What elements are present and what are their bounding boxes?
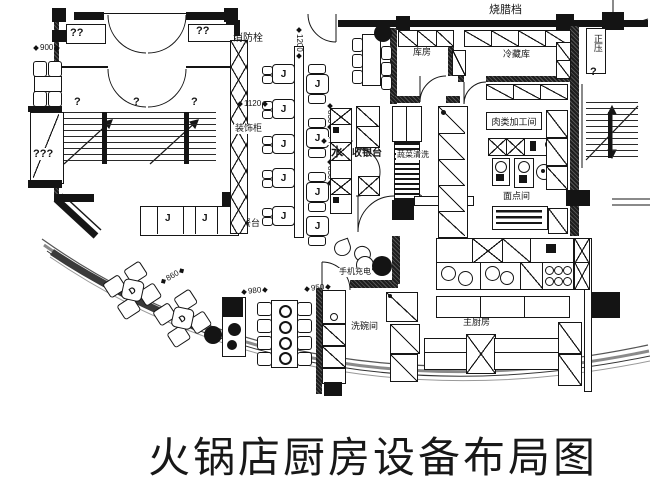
- chair: [297, 319, 312, 333]
- shelf-box: [556, 60, 571, 79]
- cashier-label: 收银台: [351, 148, 383, 159]
- equipment-block: [392, 200, 414, 220]
- cabinet-box: [548, 208, 568, 234]
- wok-burner: [563, 277, 572, 286]
- mixer-base: [496, 174, 504, 181]
- meat-processing-label-box: 肉类加工间: [486, 112, 542, 130]
- right-stairs: [586, 102, 638, 160]
- cabinet-cell: [439, 211, 465, 236]
- work-table: [480, 296, 526, 318]
- cabinet-box: [390, 354, 418, 382]
- wok-burner: [545, 266, 554, 275]
- dining-table-long: [362, 34, 381, 86]
- dimension: 1200: [295, 28, 303, 58]
- placeholder-text: ?: [74, 96, 81, 108]
- wall-segment: [28, 180, 62, 188]
- shelf-box: [540, 84, 568, 100]
- wall-dishwash-top: [350, 280, 398, 288]
- chair: [257, 336, 272, 350]
- seat-label: J: [201, 213, 209, 224]
- chair: [381, 62, 392, 76]
- dish-counter: [322, 324, 346, 346]
- cabinet-divider: [217, 206, 218, 234]
- cabinet-divider: [195, 206, 196, 234]
- cashier-counter: [356, 126, 380, 148]
- island-table: [424, 338, 468, 370]
- chair: [48, 91, 62, 107]
- placeholder-text: ?: [191, 96, 198, 108]
- cabinet-box: [390, 324, 420, 354]
- wall-storeroom-bottom: [390, 96, 420, 103]
- kitchen-hood-unit: [436, 238, 474, 264]
- sink-unit: [506, 138, 525, 156]
- plant: [372, 256, 392, 276]
- veg-wash-sink: [406, 106, 422, 142]
- placeholder-text: ??: [70, 27, 83, 39]
- kitchen-equipment: [574, 262, 590, 290]
- booth-table: J: [306, 74, 329, 94]
- banquette-counter: [294, 46, 304, 238]
- chair: [257, 302, 272, 316]
- chair: [352, 54, 363, 68]
- veg-wash-label: 蔬菜清洗: [396, 151, 430, 160]
- meat-processing-label: 肉类加工间: [491, 115, 536, 128]
- kiosk-top: [223, 298, 243, 317]
- wall-line: [186, 66, 236, 68]
- pastry-room-label: 面点间: [502, 192, 531, 202]
- stool-center: [541, 169, 545, 173]
- cabinet-box: [546, 138, 568, 166]
- wall-segment: [74, 12, 104, 20]
- cabinet-box: [546, 110, 568, 138]
- chair: [33, 91, 47, 107]
- wall-pillar: [52, 30, 67, 42]
- booth-table: J: [306, 216, 329, 236]
- shelf-box: [464, 30, 492, 47]
- cold-storage-door: [464, 82, 486, 104]
- chair: [297, 352, 312, 366]
- hotpot-burner: [279, 305, 292, 318]
- square-table: D: [120, 278, 145, 303]
- cabinet-cell: [439, 133, 465, 160]
- chair: [381, 76, 392, 90]
- booth-chair: [308, 172, 326, 182]
- square-table: D: [170, 306, 195, 331]
- placeholder-text: ?: [133, 96, 140, 108]
- booth-chair: [308, 118, 326, 128]
- wall-pillar: [52, 8, 66, 22]
- stair-post: [184, 112, 189, 164]
- stove-unit: [520, 262, 544, 290]
- equipment-block: [530, 141, 536, 151]
- dough-table-top: [496, 210, 542, 224]
- table-divider: [494, 352, 568, 353]
- wok-burner: [545, 277, 554, 286]
- work-table: [436, 296, 482, 318]
- wall-dishwash-vertical: [392, 236, 400, 284]
- booth-table: J: [272, 168, 295, 188]
- booth-chair: [308, 202, 326, 212]
- chair: [297, 302, 312, 316]
- wall-pillar: [566, 190, 590, 206]
- equipment-dot: [441, 110, 446, 115]
- water-bar-label: 水: [330, 146, 344, 159]
- wok-burner: [563, 266, 572, 275]
- mixer-bowl: [495, 161, 507, 173]
- chair: [352, 38, 363, 52]
- chair: [381, 46, 392, 60]
- entrance-door-arcs: [108, 15, 186, 107]
- seat-label: J: [164, 213, 172, 224]
- chair: [352, 70, 363, 84]
- drawing-title: 火锅店厨房设备布局图: [148, 424, 598, 482]
- plant: [374, 24, 392, 42]
- stair-post: [102, 112, 107, 164]
- equipment-block: [546, 244, 556, 253]
- shelf-box: [436, 30, 454, 47]
- storeroom-label: 库房: [412, 48, 432, 58]
- wall-storeroom-bottom: [446, 96, 460, 103]
- cabinet-cell: [439, 159, 465, 186]
- booth-chair: [308, 236, 326, 246]
- shelf-box: [417, 30, 437, 47]
- chair: [33, 61, 47, 77]
- dimension: 900: [34, 44, 59, 52]
- booth-chair: [308, 64, 326, 74]
- mixer-bowl: [518, 161, 530, 173]
- storeroom-door: [420, 76, 446, 102]
- table-divider: [424, 352, 466, 353]
- lobby-stairs: [62, 112, 216, 164]
- stove-burner: [485, 266, 500, 281]
- booth-table: J: [272, 64, 295, 84]
- stove-burner: [500, 271, 514, 285]
- drain: [330, 313, 338, 321]
- chair: [257, 352, 272, 366]
- wall-segment: [54, 194, 94, 202]
- booth-chair: [308, 148, 326, 158]
- shelf-box: [452, 50, 466, 76]
- placeholder-text: ??: [196, 25, 209, 37]
- cabinet-box: [558, 322, 582, 354]
- stove-burner: [441, 266, 456, 281]
- plant: [204, 326, 222, 344]
- dining-table: [34, 76, 62, 92]
- wall-line: [60, 66, 108, 68]
- dimension: 1120: [238, 100, 267, 108]
- booth-table: J: [272, 99, 295, 119]
- prep-cabinet-row: [140, 206, 239, 236]
- kiosk-equipment: [227, 340, 237, 350]
- chair: [297, 336, 312, 350]
- hotpot-burner: [279, 352, 292, 365]
- cabinet-divider: [157, 206, 158, 234]
- sink-unit: [488, 138, 507, 156]
- decor-cabinet: [230, 40, 248, 234]
- equipment-block: [333, 197, 339, 203]
- placeholder-text: ?: [590, 66, 597, 78]
- column-pillar: [592, 292, 620, 318]
- cashier-counter: [356, 106, 380, 128]
- wok-burner: [554, 266, 563, 275]
- work-table: [524, 296, 570, 318]
- placeholder-text: ???: [33, 148, 53, 160]
- kiosk-equipment: [228, 323, 241, 336]
- positive-pressure-label: 正压: [591, 34, 603, 52]
- wok-burner: [554, 277, 563, 286]
- bar-counter-unit: [330, 160, 352, 180]
- equipment-block: [324, 382, 342, 396]
- stove-burner: [458, 271, 473, 286]
- wall-pillar: [396, 16, 410, 30]
- kitchen-hood-unit: [502, 238, 532, 264]
- shelf-box: [398, 30, 418, 47]
- main-kitchen-label: 主厨房: [462, 318, 491, 328]
- island-center-unit: [466, 334, 496, 374]
- bbq-stall-label: 烧腊档: [488, 4, 523, 16]
- wall-segment: [458, 76, 464, 82]
- booth-table: J: [272, 206, 295, 226]
- room-diagonal: [33, 114, 59, 178]
- shelf-box: [491, 30, 519, 47]
- kitchen-equipment: [574, 238, 590, 264]
- hotpot-burner: [279, 337, 292, 350]
- mixer-base: [519, 175, 527, 183]
- phone-charging-label: 手机充电: [338, 268, 372, 277]
- shelf-box: [518, 30, 546, 47]
- dishwash-label: 洗碗间: [350, 322, 379, 332]
- booth-chair: [308, 94, 326, 104]
- chair: [257, 319, 272, 333]
- stair-post: [608, 112, 612, 158]
- equipment-block: [333, 127, 339, 133]
- wall-line: [104, 13, 186, 14]
- cabinet-cell: [439, 185, 465, 212]
- shelf-box: [486, 84, 514, 100]
- dining-entry-door: [308, 14, 336, 42]
- cabinet-box: [546, 166, 568, 190]
- cabinet-box: [558, 354, 582, 386]
- dish-counter: [322, 346, 346, 368]
- cold-storage-label: 冷藏库: [502, 50, 531, 60]
- equipment-dot: [388, 294, 392, 298]
- shelf-box: [513, 84, 541, 100]
- shelf-box: [556, 42, 571, 61]
- decor-cabinet-label: 装饰柜: [234, 124, 263, 134]
- booth-table: J: [272, 134, 295, 154]
- cashier-counter: [358, 176, 380, 196]
- chair: [48, 61, 62, 77]
- kitchen-hood-unit: [472, 238, 504, 264]
- cabinet-divider: [183, 206, 184, 234]
- fire-hydrant-label: 消防栓: [232, 33, 264, 44]
- floor-plan-canvas: ?? ?? ? ? ? ??? 900 J J 备餐台 装饰柜 消防栓 J J …: [0, 0, 650, 482]
- hotpot-burner: [279, 321, 292, 334]
